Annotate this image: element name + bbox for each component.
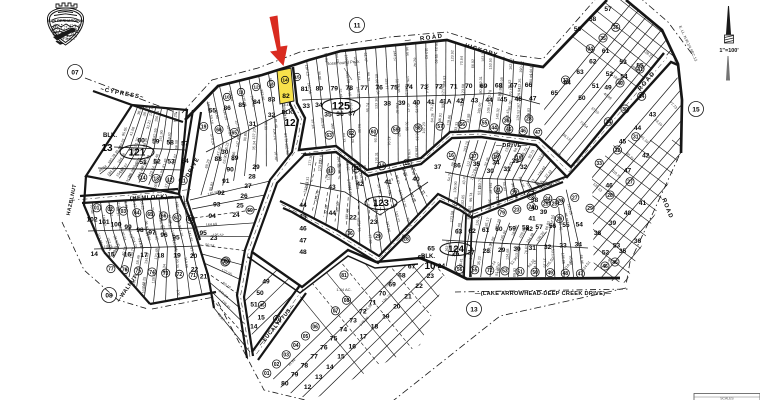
svg-text:52: 52 <box>602 250 610 257</box>
svg-text:95.59: 95.59 <box>568 256 573 266</box>
svg-text:61: 61 <box>482 227 490 234</box>
svg-text:104.74: 104.74 <box>272 128 277 139</box>
svg-text:23: 23 <box>514 207 520 213</box>
svg-text:31: 31 <box>529 245 537 252</box>
svg-text:SCALES: SCALES <box>720 397 734 400</box>
svg-text:94.30: 94.30 <box>357 124 361 133</box>
svg-text:23: 23 <box>370 219 378 226</box>
svg-text:44: 44 <box>634 125 642 132</box>
svg-text:125: 125 <box>332 101 350 113</box>
svg-text:56: 56 <box>549 223 557 230</box>
svg-text:82.42: 82.42 <box>413 58 417 67</box>
svg-text:—(LAKE ARROWHEAD-DEEP CREEK DR: —(LAKE ARROWHEAD-DEEP CREEK DRIVE)— <box>475 291 611 297</box>
svg-text:36: 36 <box>613 25 619 31</box>
svg-text:66: 66 <box>525 82 533 89</box>
svg-text:28: 28 <box>403 237 409 243</box>
svg-text:65: 65 <box>147 212 153 218</box>
svg-text:38: 38 <box>594 230 602 237</box>
svg-text:45: 45 <box>619 138 627 145</box>
svg-text:74: 74 <box>340 327 348 334</box>
svg-text:83: 83 <box>268 96 276 103</box>
svg-text:59: 59 <box>393 128 399 134</box>
svg-text:12: 12 <box>284 118 296 129</box>
svg-text:69: 69 <box>480 83 488 90</box>
svg-text:16: 16 <box>448 153 454 159</box>
svg-text:162.30: 162.30 <box>509 58 513 69</box>
svg-text:80: 80 <box>316 86 324 93</box>
svg-text:41: 41 <box>637 67 643 73</box>
svg-text:82: 82 <box>282 93 290 100</box>
svg-text:76: 76 <box>122 268 128 274</box>
svg-text:57.18: 57.18 <box>310 119 315 129</box>
svg-text:73: 73 <box>163 271 169 277</box>
svg-text:63: 63 <box>326 133 332 139</box>
svg-text:14: 14 <box>140 175 146 181</box>
svg-text:102: 102 <box>86 216 97 223</box>
svg-text:38: 38 <box>384 101 392 108</box>
svg-text:72: 72 <box>359 309 367 316</box>
svg-text:46: 46 <box>602 264 608 270</box>
svg-text:10: 10 <box>424 261 436 272</box>
svg-text:153.50: 153.50 <box>489 58 493 69</box>
svg-text:58: 58 <box>415 126 421 132</box>
svg-text:49: 49 <box>604 85 612 92</box>
svg-text:1.34 AC.: 1.34 AC. <box>336 287 351 292</box>
svg-text:51: 51 <box>139 159 147 166</box>
svg-text:15: 15 <box>337 354 345 361</box>
svg-text:48: 48 <box>563 271 569 277</box>
svg-text:85.20: 85.20 <box>508 100 513 110</box>
svg-text:67: 67 <box>510 82 518 89</box>
svg-text:01: 01 <box>264 371 270 377</box>
svg-text:44: 44 <box>329 210 337 217</box>
svg-text:44: 44 <box>299 202 307 209</box>
svg-text:15: 15 <box>258 315 266 322</box>
svg-text:28: 28 <box>248 174 256 181</box>
svg-text:20: 20 <box>190 253 198 260</box>
svg-text:31: 31 <box>633 135 639 141</box>
svg-text:35: 35 <box>473 161 481 168</box>
svg-text:26: 26 <box>240 193 248 200</box>
svg-text:95: 95 <box>200 230 208 237</box>
svg-text:49: 49 <box>262 279 270 286</box>
svg-text:71: 71 <box>190 273 196 279</box>
svg-text:11: 11 <box>354 166 360 172</box>
svg-text:56: 56 <box>574 26 582 33</box>
svg-text:133.30: 133.30 <box>375 98 379 109</box>
svg-text:38: 38 <box>531 197 539 204</box>
svg-text:81: 81 <box>341 273 347 279</box>
svg-text:72: 72 <box>487 268 493 274</box>
svg-text:65: 65 <box>427 246 435 253</box>
svg-text:75: 75 <box>136 269 142 275</box>
svg-text:80.66: 80.66 <box>374 74 379 83</box>
svg-text:15: 15 <box>692 106 700 113</box>
svg-text:14: 14 <box>91 251 99 258</box>
svg-text:32: 32 <box>615 148 621 154</box>
svg-text:32: 32 <box>544 244 552 251</box>
svg-text:48: 48 <box>299 249 307 256</box>
svg-text:85.30: 85.30 <box>335 202 340 212</box>
svg-text:38.99: 38.99 <box>264 121 268 130</box>
svg-text:50: 50 <box>256 290 264 297</box>
svg-text:55.60: 55.60 <box>434 54 438 63</box>
svg-text:13: 13 <box>470 306 478 313</box>
svg-text:39: 39 <box>540 209 548 216</box>
svg-text:62: 62 <box>468 228 476 235</box>
svg-text:29: 29 <box>498 247 506 254</box>
svg-text:81.49: 81.49 <box>273 119 277 128</box>
svg-text:20: 20 <box>393 303 401 310</box>
svg-text:13: 13 <box>153 176 159 182</box>
svg-text:101: 101 <box>98 219 109 226</box>
svg-text:40: 40 <box>624 210 632 217</box>
svg-text:11: 11 <box>181 178 187 184</box>
svg-text:13: 13 <box>315 374 323 381</box>
svg-text:08: 08 <box>105 292 113 299</box>
svg-text:73: 73 <box>349 318 357 325</box>
svg-text:46: 46 <box>514 96 522 103</box>
svg-text:53: 53 <box>167 158 175 165</box>
svg-text:69: 69 <box>247 208 253 214</box>
svg-text:12: 12 <box>253 85 259 91</box>
svg-text:58: 58 <box>167 140 175 147</box>
svg-text:74: 74 <box>405 84 413 91</box>
svg-text:73: 73 <box>420 84 428 91</box>
svg-text:99.74: 99.74 <box>469 193 473 202</box>
svg-text:15: 15 <box>404 161 410 167</box>
svg-text:66: 66 <box>216 127 222 133</box>
svg-text:60: 60 <box>371 129 377 135</box>
svg-text:88.20: 88.20 <box>173 113 177 122</box>
svg-text:43.47: 43.47 <box>462 175 467 184</box>
svg-text:—: — <box>404 38 411 45</box>
svg-text:02: 02 <box>274 362 280 368</box>
svg-text:41: 41 <box>384 179 392 186</box>
svg-text:25: 25 <box>236 203 244 210</box>
svg-text:39: 39 <box>609 220 617 227</box>
svg-text:46: 46 <box>520 129 526 135</box>
svg-text:95: 95 <box>172 235 180 242</box>
svg-text:34: 34 <box>606 120 612 126</box>
svg-text:166.21: 166.21 <box>434 40 438 51</box>
svg-text:123: 123 <box>373 198 389 209</box>
svg-text:35.34: 35.34 <box>252 141 256 150</box>
svg-text:179.94: 179.94 <box>407 149 411 160</box>
svg-text:86: 86 <box>224 105 232 112</box>
svg-text:68: 68 <box>188 217 194 223</box>
svg-text:47: 47 <box>529 95 537 102</box>
svg-text:72: 72 <box>177 272 183 278</box>
svg-text:144.89: 144.89 <box>529 64 534 76</box>
svg-text:35: 35 <box>600 36 606 42</box>
svg-text:41: 41 <box>639 200 647 207</box>
svg-text:96.95: 96.95 <box>405 47 409 56</box>
svg-text:107.23: 107.23 <box>422 122 426 133</box>
svg-text:80: 80 <box>281 381 289 388</box>
svg-text:62: 62 <box>349 131 355 137</box>
svg-text:12: 12 <box>379 164 385 170</box>
svg-text:91: 91 <box>222 178 230 185</box>
svg-text:70: 70 <box>379 291 387 298</box>
svg-text:169.88: 169.88 <box>488 199 492 210</box>
svg-text:11: 11 <box>354 22 361 29</box>
svg-text:17: 17 <box>471 154 477 160</box>
svg-text:50.66: 50.66 <box>405 122 409 131</box>
svg-text:124.68: 124.68 <box>505 248 510 260</box>
svg-text:27: 27 <box>627 180 633 186</box>
svg-text:35: 35 <box>619 248 627 255</box>
svg-text:74: 74 <box>149 270 155 276</box>
svg-text:98: 98 <box>136 227 144 234</box>
svg-text:51: 51 <box>250 301 258 308</box>
svg-text:33: 33 <box>596 161 602 167</box>
svg-text:22: 22 <box>512 190 518 196</box>
svg-text:45: 45 <box>500 96 508 103</box>
svg-text:56: 56 <box>460 122 466 128</box>
svg-text:69: 69 <box>388 282 396 289</box>
svg-text:03: 03 <box>283 353 289 359</box>
svg-text:13: 13 <box>101 143 113 154</box>
svg-text:41: 41 <box>274 317 280 322</box>
svg-text:66: 66 <box>161 214 167 220</box>
svg-text:53: 53 <box>619 59 627 66</box>
svg-text:75.41: 75.41 <box>282 103 291 107</box>
svg-text:76: 76 <box>375 85 383 92</box>
svg-text:86.29: 86.29 <box>415 131 419 140</box>
svg-text:58: 58 <box>589 16 597 23</box>
svg-text:63: 63 <box>576 69 584 76</box>
svg-text:67: 67 <box>174 215 180 221</box>
svg-text:62: 62 <box>589 59 597 66</box>
svg-text:55: 55 <box>472 268 478 274</box>
svg-text:53: 53 <box>502 269 508 275</box>
svg-text:186.93: 186.93 <box>414 146 418 157</box>
svg-text:45: 45 <box>612 260 618 266</box>
svg-text:25: 25 <box>543 201 549 207</box>
svg-text:46: 46 <box>606 183 614 190</box>
svg-text:50: 50 <box>578 95 586 102</box>
svg-text:61.47: 61.47 <box>363 52 368 61</box>
svg-text:33: 33 <box>302 103 310 110</box>
svg-text:42.47: 42.47 <box>406 103 410 112</box>
svg-text:41: 41 <box>427 99 435 106</box>
svg-text:24: 24 <box>528 204 534 210</box>
svg-text:55: 55 <box>209 108 217 115</box>
svg-text:79: 79 <box>499 210 505 216</box>
svg-text:70: 70 <box>222 260 228 266</box>
svg-text:70.64: 70.64 <box>460 56 464 65</box>
svg-text:79: 79 <box>291 372 299 379</box>
svg-text:105.17: 105.17 <box>176 289 180 300</box>
svg-text:11: 11 <box>238 90 243 96</box>
svg-text:71: 71 <box>369 300 377 307</box>
svg-text:14: 14 <box>639 94 645 100</box>
svg-text:34: 34 <box>575 242 583 249</box>
svg-text:66.92: 66.92 <box>471 59 475 68</box>
svg-text:81.33: 81.33 <box>495 266 500 276</box>
svg-text:10: 10 <box>224 95 230 101</box>
svg-text:95.74: 95.74 <box>366 103 370 112</box>
svg-text:66: 66 <box>418 255 426 262</box>
svg-text:23: 23 <box>427 273 435 280</box>
svg-text:184.92: 184.92 <box>336 156 340 167</box>
svg-text:16: 16 <box>348 344 356 351</box>
svg-text:41: 41 <box>528 216 536 223</box>
svg-text:151.87: 151.87 <box>488 182 492 193</box>
svg-text:106.85: 106.85 <box>561 253 566 265</box>
svg-text:68: 68 <box>398 273 406 280</box>
svg-text:36: 36 <box>453 163 461 170</box>
svg-text:41A: 41A <box>439 99 451 106</box>
svg-text:61: 61 <box>602 48 610 55</box>
svg-text:99: 99 <box>124 224 132 231</box>
svg-text:32: 32 <box>268 112 276 119</box>
svg-text:21: 21 <box>200 274 208 281</box>
svg-text:52: 52 <box>606 71 614 78</box>
svg-text:75: 75 <box>390 84 398 91</box>
svg-text:45: 45 <box>259 303 265 308</box>
svg-text:54: 54 <box>181 158 189 165</box>
svg-text:47: 47 <box>624 168 632 175</box>
svg-text:133.79: 133.79 <box>478 178 482 189</box>
svg-text:96: 96 <box>160 232 168 239</box>
svg-text:50: 50 <box>532 270 538 276</box>
svg-text:28: 28 <box>526 117 532 123</box>
svg-text:10: 10 <box>328 169 334 175</box>
svg-text:54: 54 <box>576 221 584 228</box>
svg-text:03: 03 <box>121 209 127 215</box>
svg-text:22: 22 <box>349 215 357 222</box>
svg-text:23: 23 <box>210 235 218 242</box>
svg-text:24: 24 <box>232 212 240 219</box>
svg-text:102.65: 102.65 <box>461 195 466 207</box>
svg-text:42: 42 <box>356 181 364 188</box>
svg-text:68: 68 <box>495 83 503 90</box>
svg-text:60: 60 <box>495 226 503 233</box>
svg-text:06: 06 <box>312 325 318 331</box>
svg-text:46: 46 <box>299 226 307 233</box>
svg-text:93: 93 <box>213 202 221 209</box>
svg-text:40: 40 <box>413 100 421 107</box>
svg-text:72: 72 <box>435 84 443 91</box>
svg-text:76: 76 <box>320 345 328 352</box>
svg-text:57: 57 <box>437 124 443 130</box>
svg-text:132.60: 132.60 <box>319 153 324 165</box>
svg-text:159.77: 159.77 <box>384 78 389 89</box>
svg-text:42: 42 <box>642 153 650 160</box>
svg-text:65: 65 <box>232 130 238 136</box>
svg-text:04: 04 <box>293 343 299 349</box>
svg-text:12: 12 <box>304 384 312 391</box>
svg-text:17: 17 <box>360 334 368 341</box>
svg-text:49: 49 <box>547 270 553 276</box>
svg-text:19: 19 <box>201 124 207 130</box>
svg-text:30: 30 <box>221 149 229 156</box>
svg-text:126.31: 126.31 <box>375 152 379 163</box>
svg-text:124: 124 <box>448 244 465 255</box>
svg-text:40: 40 <box>412 176 420 183</box>
svg-text:29: 29 <box>587 206 593 212</box>
svg-text:18: 18 <box>157 252 165 259</box>
svg-text:37: 37 <box>434 164 442 171</box>
svg-text:21: 21 <box>495 187 501 193</box>
svg-text:07: 07 <box>71 69 79 76</box>
svg-text:67: 67 <box>408 264 416 271</box>
svg-text:31: 31 <box>249 121 257 128</box>
svg-text:33: 33 <box>512 158 520 165</box>
svg-text:75: 75 <box>330 336 338 343</box>
svg-text:17: 17 <box>140 252 148 259</box>
svg-text:15: 15 <box>107 251 115 258</box>
svg-text:71.64: 71.64 <box>356 71 361 81</box>
svg-text:51: 51 <box>592 83 600 90</box>
svg-text:36: 36 <box>347 231 353 237</box>
svg-text:44: 44 <box>485 97 493 104</box>
svg-text:60: 60 <box>138 138 146 145</box>
svg-text:77.60: 77.60 <box>368 234 373 244</box>
svg-text:58: 58 <box>522 225 530 232</box>
svg-text:19: 19 <box>382 313 390 320</box>
svg-text:45: 45 <box>299 214 307 221</box>
svg-text:124.76: 124.76 <box>357 220 361 231</box>
svg-text:70: 70 <box>465 83 473 90</box>
svg-text:59: 59 <box>152 139 160 146</box>
svg-text:55: 55 <box>562 222 570 229</box>
svg-text:64.13: 64.13 <box>341 133 346 143</box>
svg-text:16: 16 <box>124 252 132 259</box>
svg-text:34: 34 <box>492 159 500 166</box>
svg-text:14: 14 <box>250 324 258 331</box>
svg-text:90.78: 90.78 <box>366 72 371 81</box>
svg-text:123.92: 123.92 <box>450 50 454 61</box>
svg-text:92: 92 <box>218 190 226 197</box>
svg-text:42.91: 42.91 <box>387 136 391 145</box>
svg-text:64: 64 <box>134 211 140 217</box>
svg-text:33: 33 <box>563 78 569 84</box>
svg-text:28: 28 <box>607 193 613 199</box>
svg-text:21: 21 <box>404 293 412 300</box>
svg-text:33: 33 <box>559 243 567 250</box>
svg-text:07: 07 <box>333 309 339 315</box>
svg-text:97.47: 97.47 <box>273 151 277 160</box>
svg-text:13: 13 <box>268 82 274 88</box>
svg-text:79: 79 <box>331 85 339 92</box>
svg-text:14: 14 <box>282 78 288 84</box>
svg-text:02: 02 <box>107 207 113 213</box>
svg-text:100: 100 <box>110 222 121 229</box>
svg-text:27: 27 <box>572 195 578 201</box>
svg-text:163.31: 163.31 <box>481 51 485 62</box>
svg-text:56: 56 <box>457 267 463 273</box>
svg-text:32: 32 <box>520 164 528 171</box>
svg-text:37.16: 37.16 <box>542 258 546 267</box>
svg-text:30: 30 <box>487 168 495 175</box>
svg-text:57: 57 <box>181 141 189 148</box>
svg-text:36: 36 <box>504 119 510 125</box>
svg-text:113.62: 113.62 <box>424 48 428 59</box>
svg-text:1"=100': 1"=100' <box>719 48 739 54</box>
svg-text:78: 78 <box>346 85 354 92</box>
svg-text:12: 12 <box>167 177 173 183</box>
svg-text:64.36: 64.36 <box>430 113 434 122</box>
svg-text:94: 94 <box>209 213 217 220</box>
svg-text:BLK.: BLK. <box>103 133 117 139</box>
svg-text:57: 57 <box>604 6 612 13</box>
svg-text:BLK.: BLK. <box>282 110 295 116</box>
svg-text:121: 121 <box>129 147 146 158</box>
svg-text:30: 30 <box>513 246 521 253</box>
